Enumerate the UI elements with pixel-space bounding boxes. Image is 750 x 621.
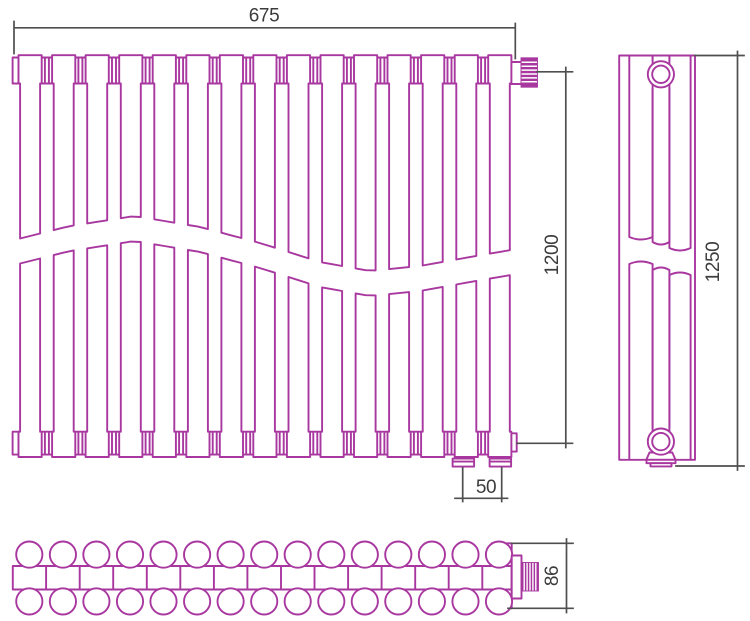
plan-tube-circle-top bbox=[251, 542, 277, 568]
slat-lower-section bbox=[354, 293, 377, 457]
slat-upper-section bbox=[388, 55, 411, 269]
slat-lower-section bbox=[119, 242, 142, 457]
plan-tube-circle-bottom bbox=[150, 588, 176, 614]
plan-tube-circle-bottom bbox=[352, 588, 378, 614]
plan-valve-neck bbox=[512, 556, 522, 599]
plan-tube-circle-top bbox=[184, 542, 210, 568]
slat-lower-section bbox=[388, 292, 411, 457]
slat-upper-section bbox=[52, 55, 75, 230]
slat-lower-section bbox=[287, 277, 310, 457]
dim-depth-label: 86 bbox=[542, 566, 563, 586]
plan-tube-circle-bottom bbox=[16, 588, 42, 614]
slat-lower-section bbox=[220, 258, 243, 457]
plan-tube-circle-bottom bbox=[385, 588, 411, 614]
plan-tube-circle-bottom bbox=[486, 588, 512, 614]
slat-upper-section bbox=[287, 55, 310, 258]
radiator-technical-drawing: 675 1200 1250 50 86 bbox=[0, 0, 750, 621]
slat-upper-section bbox=[354, 55, 377, 270]
slat-lower-section bbox=[421, 287, 444, 457]
connection-flange bbox=[453, 459, 475, 467]
plan-tube-circle-bottom bbox=[419, 588, 445, 614]
side-valve-foot bbox=[651, 463, 672, 466]
dim-connection-spacing-label: 50 bbox=[476, 477, 496, 498]
dim-overall-height-label: 1250 bbox=[703, 242, 724, 283]
slat-upper-section bbox=[321, 55, 344, 266]
slat-upper-section bbox=[455, 55, 478, 259]
connection-flange bbox=[490, 459, 512, 467]
plan-tube-circle-bottom bbox=[218, 588, 244, 614]
radiator-technical-drawing-page: 675 1200 1250 50 86 bbox=[0, 0, 750, 621]
plan-tube-circle-top bbox=[117, 542, 143, 568]
plan-tube-circle-bottom bbox=[285, 588, 311, 614]
slat-upper-section bbox=[488, 55, 511, 253]
plan-tube-circle-top bbox=[486, 542, 512, 568]
slat-lower-section bbox=[455, 281, 478, 457]
plan-tube-circle-bottom bbox=[251, 588, 277, 614]
plan-tube-circle-top bbox=[385, 542, 411, 568]
slat-lower-section bbox=[186, 250, 209, 457]
slat-lower-section bbox=[153, 244, 176, 457]
slat-lower-section bbox=[488, 275, 511, 457]
plan-tube-circle-bottom bbox=[117, 588, 143, 614]
plan-tube-circle-top bbox=[352, 542, 378, 568]
slat-upper-section bbox=[19, 55, 42, 238]
bottom-right-collar bbox=[511, 433, 516, 451]
plan-tube-circle-top bbox=[218, 542, 244, 568]
plan-manifold-band bbox=[13, 566, 512, 590]
slat-upper-section bbox=[421, 55, 444, 265]
slat-lower-section bbox=[321, 287, 344, 457]
slat-lower-section bbox=[52, 250, 75, 457]
slat-lower-section bbox=[86, 245, 109, 457]
plan-tube-circle-top bbox=[318, 542, 344, 568]
plan-tube-circle-bottom bbox=[184, 588, 210, 614]
plan-tube-circle-top bbox=[150, 542, 176, 568]
slat-upper-section bbox=[220, 55, 243, 238]
slat-lower-section bbox=[253, 267, 276, 457]
dim-height-label: 1200 bbox=[542, 235, 563, 276]
bottom-view bbox=[13, 542, 538, 615]
plan-tube-circle-bottom bbox=[50, 588, 76, 614]
plan-tube-circle-top bbox=[83, 542, 109, 568]
valve-neck bbox=[511, 62, 521, 84]
plan-tube-circle-top bbox=[285, 542, 311, 568]
plan-tube-circle-top bbox=[50, 542, 76, 568]
slat-upper-section bbox=[186, 55, 209, 229]
dim-width-label: 675 bbox=[249, 6, 280, 27]
slat-upper-section bbox=[153, 55, 176, 223]
plan-tube-circle-top bbox=[419, 542, 445, 568]
plan-tube-circle-top bbox=[16, 542, 42, 568]
plan-tube-circle-bottom bbox=[83, 588, 109, 614]
slat-upper-section bbox=[86, 55, 109, 223]
plan-tube-circle-bottom bbox=[452, 588, 478, 614]
slat-upper-section bbox=[119, 55, 142, 218]
plan-tube-circle-bottom bbox=[318, 588, 344, 614]
slat-lower-section bbox=[19, 259, 42, 458]
slat-upper-section bbox=[253, 55, 276, 248]
plan-tube-circle-top bbox=[452, 542, 478, 568]
